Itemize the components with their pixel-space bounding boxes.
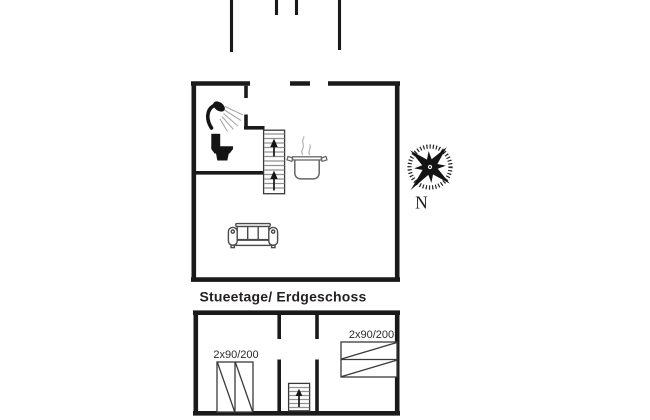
- north-label: N: [415, 193, 428, 213]
- floorplan-canvas: N Stueetage/ Erdgeschoss 2x90/200 2x90/2…: [0, 0, 650, 420]
- lower-floor-plan: 2x90/200 2x90/200: [193, 310, 400, 415]
- floorplan-page: N Stueetage/ Erdgeschoss 2x90/200 2x90/2…: [0, 0, 650, 420]
- bed-size-label: 2x90/200: [213, 349, 258, 361]
- ground-floor-plan: [191, 81, 400, 282]
- upper-floor-outline: [232, 0, 340, 52]
- bed-size-label: 2x90/200: [349, 329, 394, 341]
- double-bed-icon: 2x90/200: [213, 349, 258, 412]
- double-bed-icon: 2x90/200: [341, 329, 397, 377]
- floor-label: Stueetage/ Erdgeschoss: [199, 289, 366, 305]
- shower-icon: [208, 99, 243, 131]
- compass-rose-icon: N: [410, 147, 451, 213]
- sofa-icon: [228, 224, 277, 248]
- cooking-pot-icon: [287, 137, 327, 179]
- toilet-icon: [211, 134, 233, 161]
- interior-walls: [196, 86, 265, 173]
- staircase: [289, 383, 310, 410]
- staircase: [264, 130, 285, 194]
